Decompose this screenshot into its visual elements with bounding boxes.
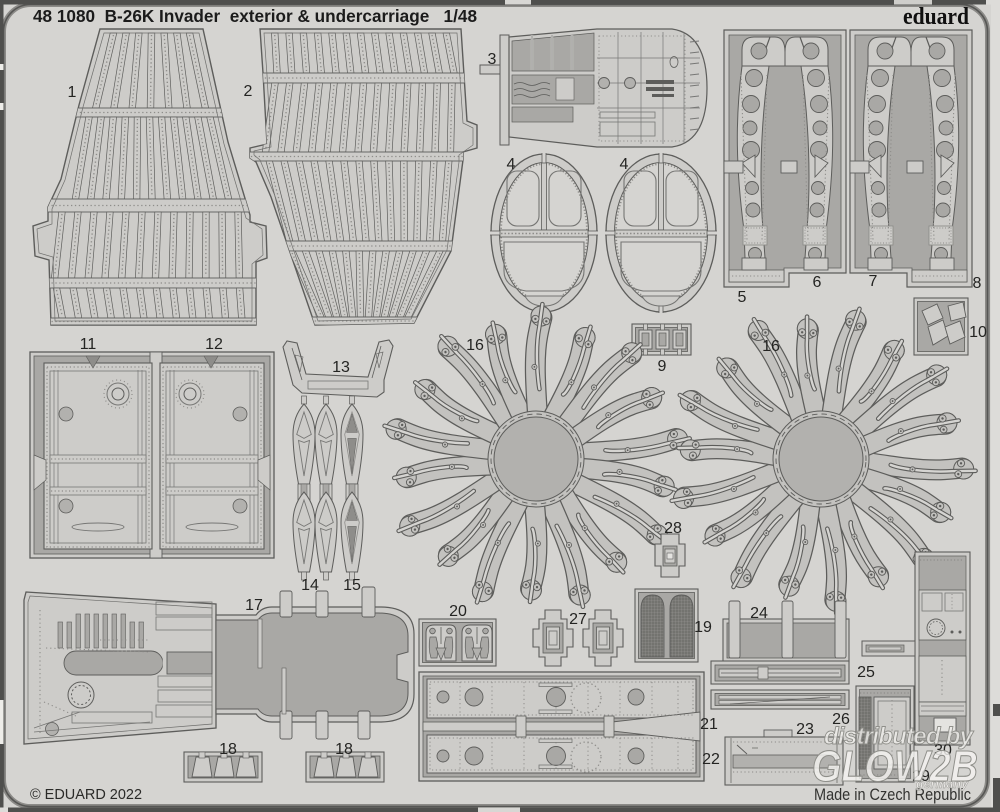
svg-text:16: 16 — [762, 338, 780, 355]
svg-text:© EDUARD 2022: © EDUARD 2022 — [30, 786, 142, 803]
svg-text:11: 11 — [80, 336, 97, 353]
svg-text:7: 7 — [869, 273, 878, 290]
svg-text:18: 18 — [335, 741, 353, 758]
svg-text:10: 10 — [969, 324, 987, 341]
svg-text:3: 3 — [488, 51, 497, 68]
svg-text:48 1080 B-26K Invader exteri: 48 1080 B-26K Invader exterior & underca… — [33, 6, 477, 26]
svg-text:27: 27 — [569, 611, 587, 628]
svg-text:19: 19 — [694, 619, 712, 636]
svg-text:20: 20 — [449, 603, 467, 620]
svg-text:4: 4 — [507, 156, 516, 173]
svg-text:5: 5 — [738, 289, 747, 306]
svg-text:germany: germany — [915, 777, 969, 791]
svg-text:28: 28 — [664, 520, 682, 537]
svg-text:17: 17 — [245, 597, 263, 614]
svg-text:23: 23 — [796, 721, 814, 738]
svg-text:2: 2 — [244, 83, 253, 100]
svg-text:12: 12 — [205, 336, 223, 353]
svg-text:9: 9 — [658, 358, 667, 375]
svg-text:1: 1 — [68, 84, 77, 101]
svg-text:25: 25 — [857, 664, 875, 681]
svg-text:22: 22 — [702, 751, 720, 768]
svg-text:21: 21 — [700, 716, 718, 733]
svg-text:18: 18 — [219, 741, 237, 758]
svg-text:13: 13 — [332, 359, 350, 376]
svg-text:4: 4 — [620, 156, 629, 173]
svg-text:8: 8 — [973, 275, 982, 292]
svg-text:16: 16 — [466, 337, 484, 354]
svg-text:eduard: eduard — [903, 4, 970, 30]
svg-text:6: 6 — [813, 274, 822, 291]
svg-text:15: 15 — [343, 577, 361, 594]
svg-text:14: 14 — [301, 577, 319, 594]
svg-text:24: 24 — [750, 605, 768, 622]
